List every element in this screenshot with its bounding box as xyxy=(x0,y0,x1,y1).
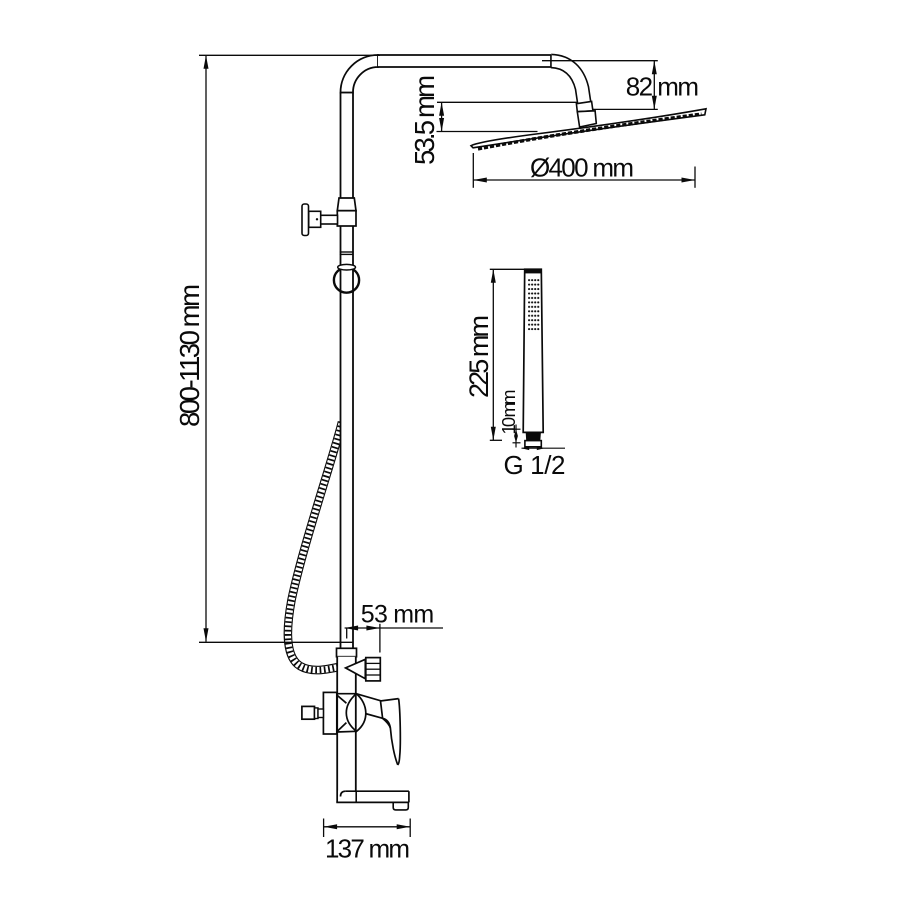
svg-text:Ø400 mm: Ø400 mm xyxy=(530,152,634,182)
svg-text:G 1/2: G 1/2 xyxy=(504,450,566,480)
svg-text:53.5 mm: 53.5 mm xyxy=(409,75,440,165)
svg-text:225 mm: 225 mm xyxy=(464,315,494,398)
svg-text:10 mm: 10 mm xyxy=(498,390,519,435)
svg-text:137 mm: 137 mm xyxy=(325,834,410,864)
svg-text:82 mm: 82 mm xyxy=(626,72,699,102)
svg-text:800-1130 mm: 800-1130 mm xyxy=(174,284,205,427)
svg-text:53 mm: 53 mm xyxy=(361,600,434,628)
